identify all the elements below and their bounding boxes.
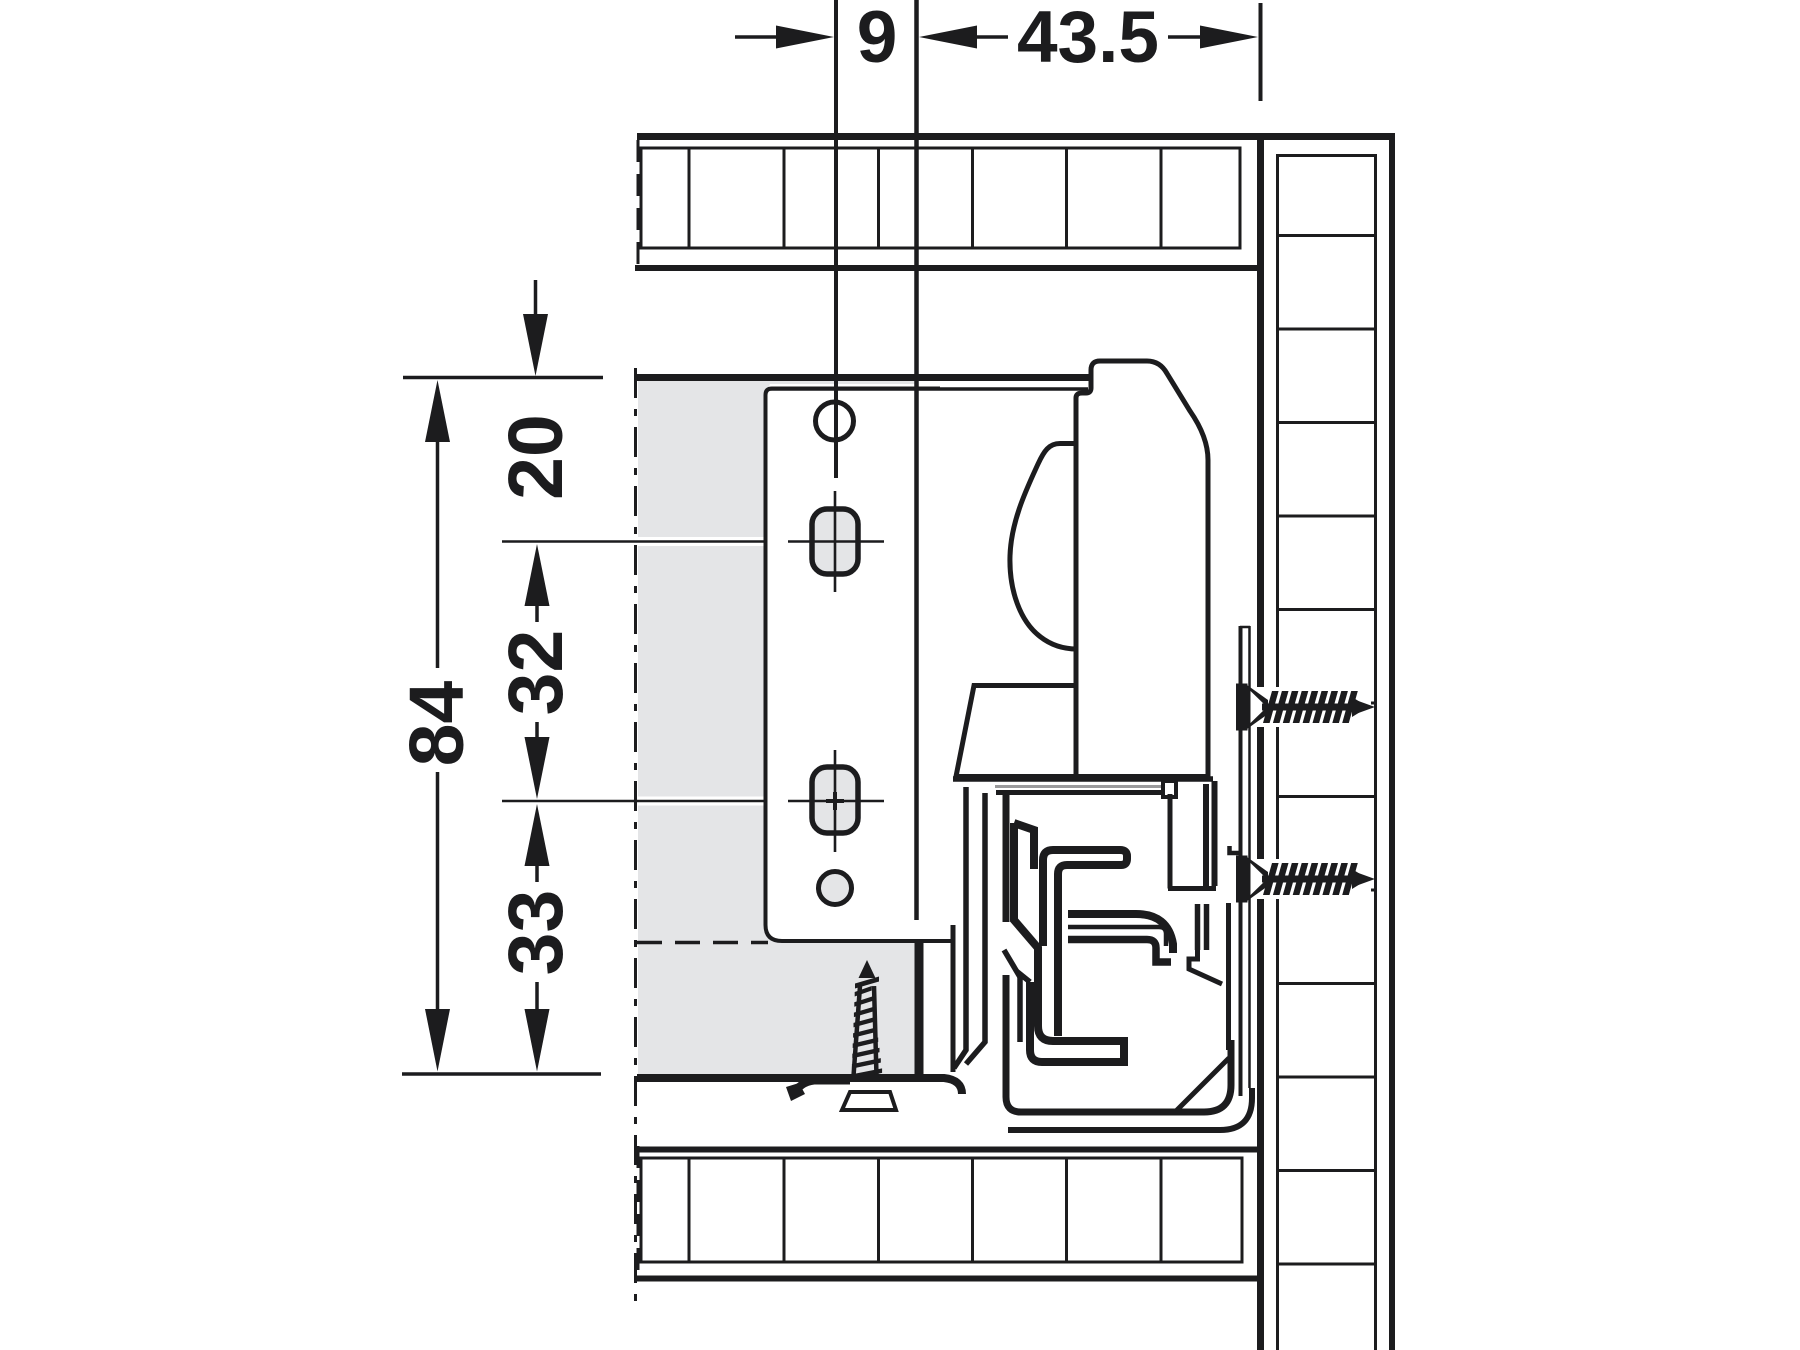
svg-text:43.5: 43.5: [1017, 0, 1159, 78]
svg-text:84: 84: [394, 681, 480, 767]
svg-text:32: 32: [493, 630, 579, 716]
svg-text:20: 20: [493, 414, 579, 500]
svg-text:33: 33: [493, 890, 579, 976]
svg-text:9: 9: [857, 0, 898, 78]
